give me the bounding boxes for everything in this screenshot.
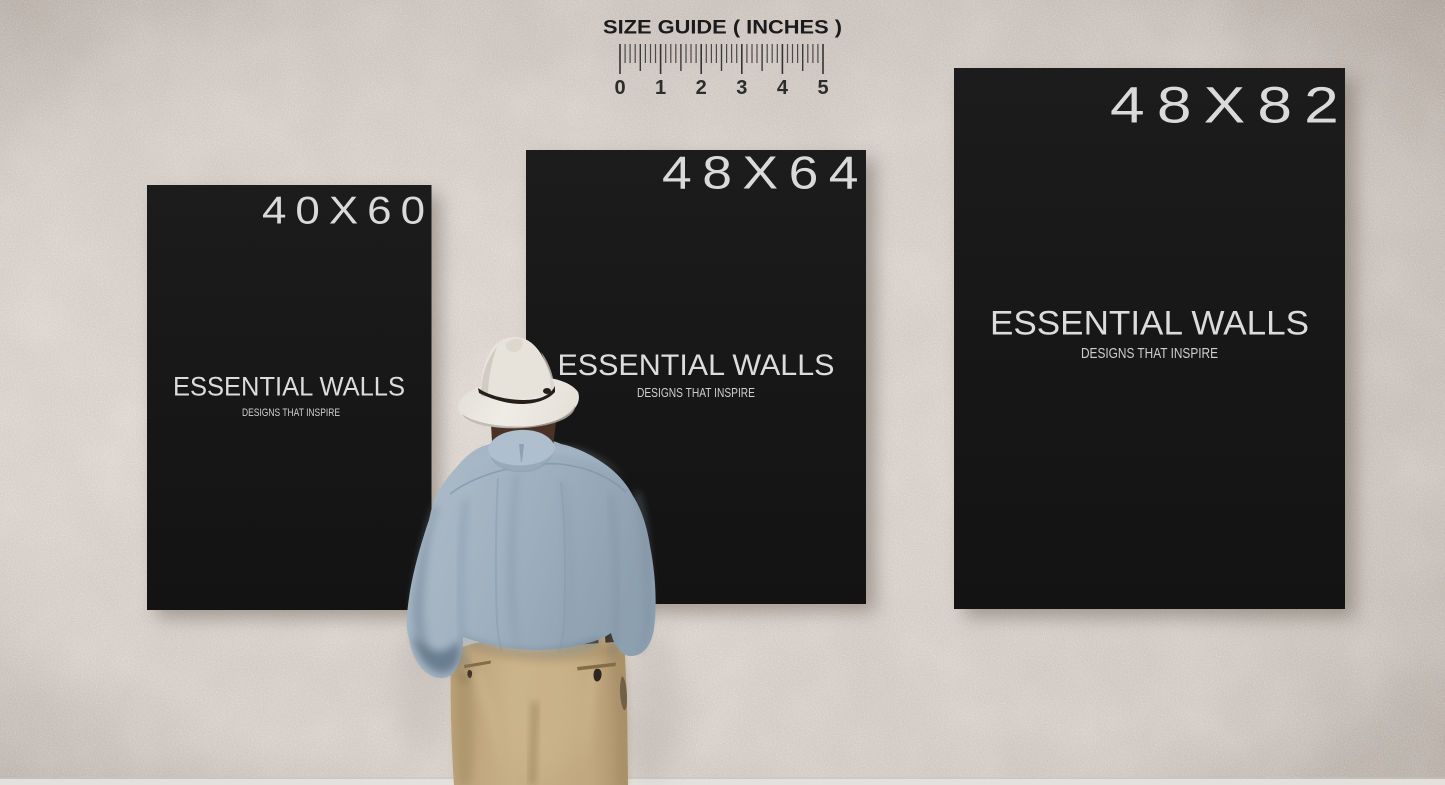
svg-text:5: 5: [817, 77, 828, 99]
svg-text:48X82: 48X82: [1110, 77, 1351, 134]
svg-text:DESIGNS THAT INSPIRE: DESIGNS THAT INSPIRE: [637, 385, 755, 400]
svg-text:ESSENTIAL WALLS: ESSENTIAL WALLS: [558, 349, 835, 382]
svg-text:48X64: 48X64: [662, 147, 869, 199]
svg-text:DESIGNS THAT INSPIRE: DESIGNS THAT INSPIRE: [242, 407, 340, 419]
svg-text:ESSENTIAL WALLS: ESSENTIAL WALLS: [173, 372, 405, 402]
svg-text:3: 3: [736, 77, 747, 99]
svg-text:SIZE GUIDE ( INCHES ): SIZE GUIDE ( INCHES ): [603, 18, 842, 39]
svg-text:4: 4: [777, 77, 789, 99]
svg-text:DESIGNS THAT INSPIRE: DESIGNS THAT INSPIRE: [1081, 346, 1218, 362]
svg-text:ESSENTIAL WALLS: ESSENTIAL WALLS: [990, 305, 1309, 343]
svg-text:1: 1: [655, 77, 666, 99]
svg-text:0: 0: [614, 77, 625, 99]
svg-text:2: 2: [696, 77, 707, 99]
svg-text:40X60: 40X60: [262, 190, 434, 233]
